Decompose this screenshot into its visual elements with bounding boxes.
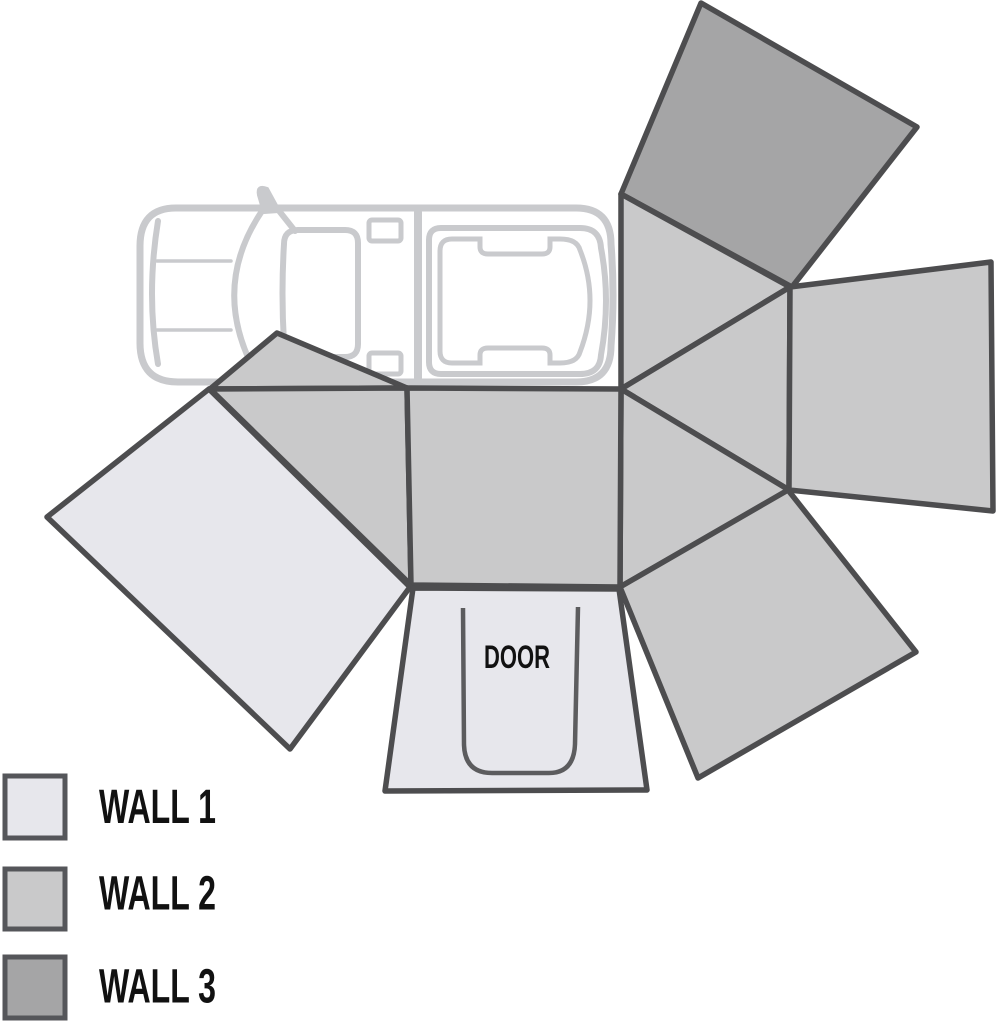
svg-text:WALL 2: WALL 2 (99, 868, 216, 921)
svg-text:DOOR: DOOR (484, 639, 550, 675)
svg-text:WALL 3: WALL 3 (99, 961, 216, 1014)
svg-text:WALL 1: WALL 1 (99, 781, 216, 834)
